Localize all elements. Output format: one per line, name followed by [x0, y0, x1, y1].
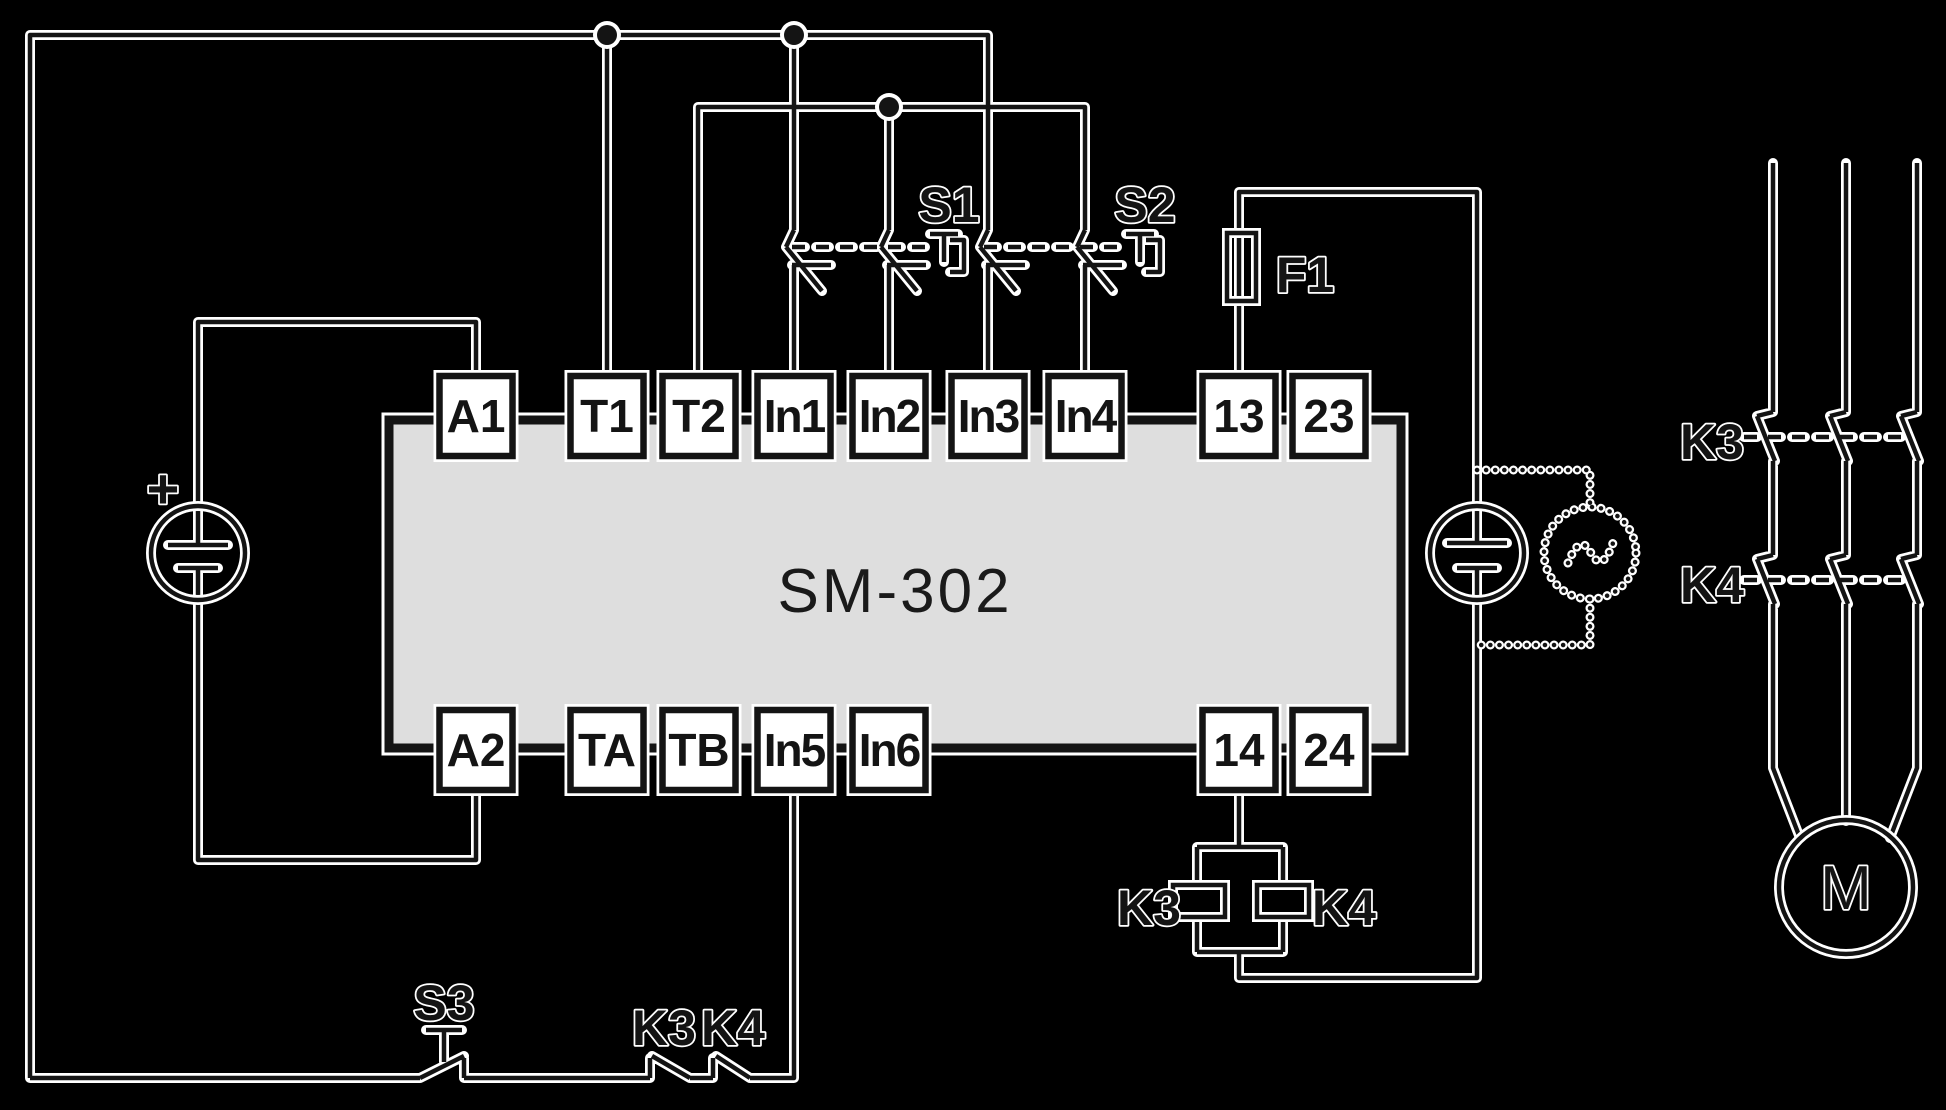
- terminal-label: In4: [1055, 390, 1118, 442]
- k3-aux-label: K3: [632, 1000, 696, 1056]
- terminal-label: A2: [447, 724, 506, 776]
- terminal-13: 13: [1203, 376, 1276, 456]
- k4-main-label: K4: [1680, 557, 1744, 613]
- module-title: SM-302: [777, 557, 1012, 626]
- terminal-label: In3: [958, 390, 1019, 442]
- ac-source-alt: [1477, 470, 1636, 645]
- k4-coil: [1257, 885, 1309, 917]
- terminal-TA: TA: [571, 710, 644, 790]
- junction-dot: [597, 25, 617, 45]
- motor: M: [1779, 820, 1913, 954]
- terminal-A2: A2: [440, 710, 513, 790]
- terminal-14: 14: [1203, 710, 1276, 790]
- terminal-label: 14: [1213, 724, 1265, 776]
- terminal-24: 24: [1293, 710, 1366, 790]
- wiring-diagram: M A1T1T2In1In2In3In41323A2TATBIn5In61424…: [0, 0, 1946, 1110]
- terminal-T1: T1: [571, 376, 644, 456]
- terminal-label: TA: [578, 724, 636, 776]
- terminal-In4: In4: [1049, 376, 1122, 456]
- terminal-label: T1: [580, 390, 634, 442]
- terminal-In6: In6: [853, 710, 926, 790]
- junction-dot: [879, 97, 899, 117]
- terminal-label: In2: [859, 390, 920, 442]
- k4-coil-label: K4: [1312, 880, 1376, 936]
- terminal-In1: In1: [758, 376, 831, 456]
- terminal-label: 13: [1213, 390, 1264, 442]
- k4-coil-halo: [1257, 885, 1309, 917]
- f1-label: F1: [1276, 247, 1334, 303]
- motor-label: M: [1820, 854, 1872, 923]
- terminal-T2: T2: [663, 376, 736, 456]
- terminal-label: 24: [1303, 724, 1355, 776]
- terminal-label: TB: [668, 724, 729, 776]
- terminal-label: In5: [764, 724, 826, 776]
- terminal-In5: In5: [758, 710, 831, 790]
- terminal-label: 23: [1303, 390, 1354, 442]
- junction-dot: [784, 25, 804, 45]
- terminal-In2: In2: [853, 376, 926, 456]
- k3-main-label: K3: [1680, 414, 1744, 470]
- s1-label: S1: [918, 177, 979, 233]
- terminal-23: 23: [1293, 376, 1366, 456]
- terminal-label: In1: [764, 390, 826, 442]
- s2-label: S2: [1114, 177, 1175, 233]
- terminal-TB: TB: [663, 710, 736, 790]
- terminal-In3: In3: [952, 376, 1025, 456]
- k3-coil-label: K3: [1117, 880, 1181, 936]
- dc-plus-sign: +: [147, 457, 180, 520]
- terminal-label: A1: [447, 390, 506, 442]
- terminal-label: T2: [672, 390, 726, 442]
- s3-label: S3: [413, 975, 474, 1031]
- k4-aux-label: K4: [701, 1000, 765, 1056]
- terminal-A1: A1: [440, 376, 513, 456]
- terminal-label: In6: [859, 724, 920, 776]
